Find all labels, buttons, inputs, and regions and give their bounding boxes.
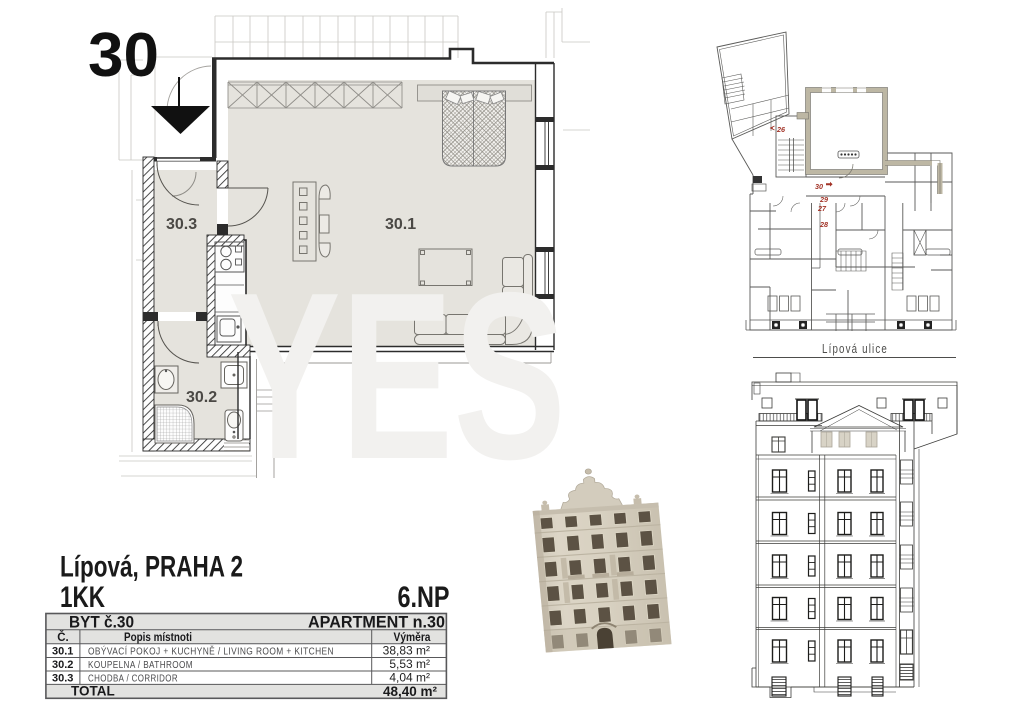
svg-text:Lípová ulice: Lípová ulice [822,342,888,356]
svg-text:Výměra: Výměra [394,632,432,644]
svg-text:30.1: 30.1 [385,216,416,233]
svg-text:38,83 m²: 38,83 m² [383,644,430,658]
svg-text:Lípová, PRAHA 2: Lípová, PRAHA 2 [60,551,243,584]
svg-text:KOUPELNA / BATHROOM: KOUPELNA / BATHROOM [88,659,193,671]
svg-text:YES: YES [228,244,566,509]
svg-text:Popis místnoti: Popis místnoti [124,632,192,644]
svg-text:27: 27 [817,204,827,213]
svg-text:30: 30 [815,182,823,191]
svg-text:TOTAL: TOTAL [71,684,115,699]
svg-text:6.NP: 6.NP [398,581,450,614]
svg-text:30: 30 [88,21,159,90]
svg-text:30.2: 30.2 [186,389,217,406]
svg-text:CHODBA / CORRIDOR: CHODBA / CORRIDOR [88,672,178,684]
svg-text:Č.: Č. [57,631,69,644]
svg-text:OBÝVACÍ POKOJ + KUCHYNĚ / LIVI: OBÝVACÍ POKOJ + KUCHYNĚ / LIVING ROOM + … [88,644,334,657]
svg-text:29: 29 [819,195,828,204]
svg-text:BYT č.30: BYT č.30 [69,613,134,631]
svg-text:APARTMENT n.30: APARTMENT n.30 [308,613,445,631]
svg-text:30.2: 30.2 [52,659,73,671]
svg-text:5,53 m²: 5,53 m² [389,657,430,671]
svg-text:30.3: 30.3 [166,216,197,233]
svg-text:26: 26 [776,125,786,134]
svg-text:1KK: 1KK [60,581,105,614]
svg-text:30.1: 30.1 [52,646,73,658]
svg-text:48,40 m²: 48,40 m² [383,684,438,699]
svg-text:28: 28 [819,220,828,229]
svg-text:4,04 m²: 4,04 m² [389,671,430,685]
